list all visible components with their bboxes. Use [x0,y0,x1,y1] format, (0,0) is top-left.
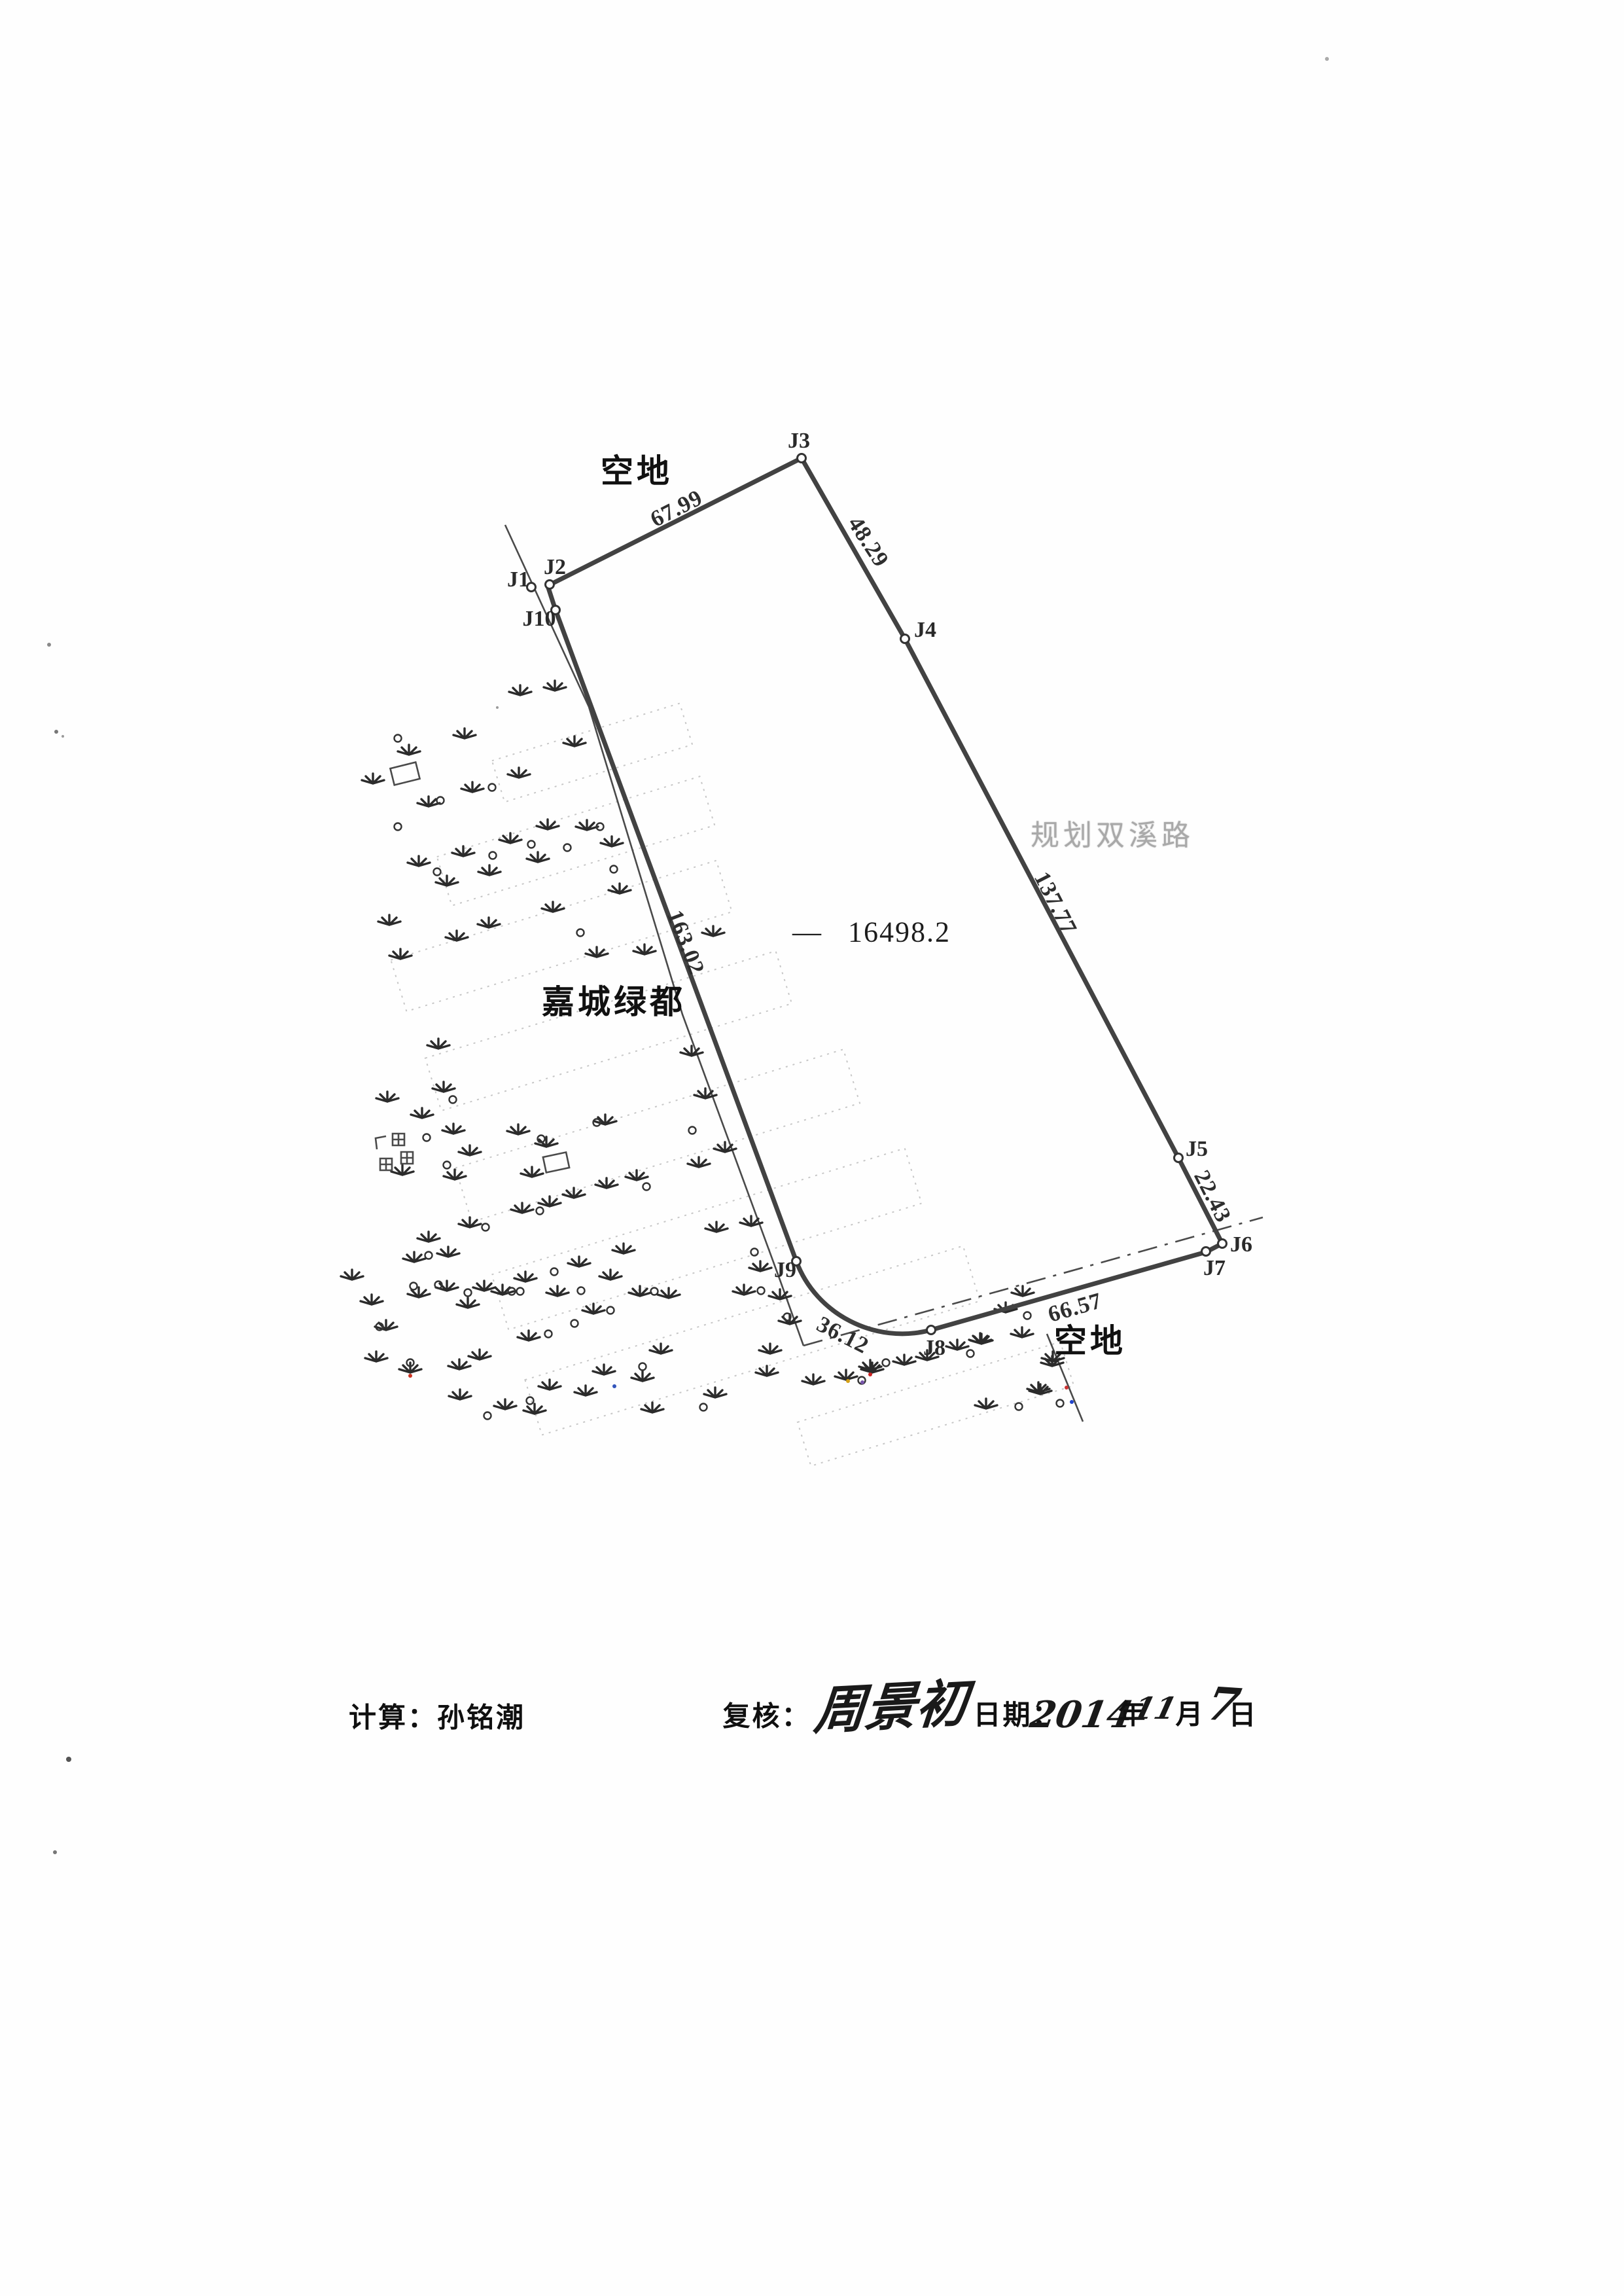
vertex-label-j9: J9 [774,1258,796,1283]
date-day-unit: 日 [1228,1693,1258,1733]
parcel-area-annotation: — 16498.2 [792,916,951,949]
vertex-marker-j4 [901,635,909,643]
date-month-unit: 月 [1175,1693,1205,1732]
vertex-marker-j2 [546,581,554,589]
area-leader-dash: — [792,916,822,948]
calculated-by-name: 孙铭潮 [437,1704,525,1734]
calculated-by-label: 计算： [349,1704,437,1734]
parcel-survey-drawing [0,0,1624,2296]
parcel-area-value: 16498.2 [848,916,951,948]
calculated-by-row: 计算：孙铭潮 [349,1696,525,1736]
vertex-label-j8: J8 [923,1336,945,1361]
vertex-marker-j8 [927,1326,936,1335]
vertex-label-j6: J6 [1230,1232,1252,1257]
vertex-label-j1: J1 [507,567,529,592]
vacant-land-label-top: 空地 [601,445,673,492]
neighborhood-label: 嘉城绿都 [542,976,686,1023]
planned-road-label: 规划双溪路 [1031,812,1194,853]
vertex-label-j10: J10 [523,607,556,632]
vertex-label-j7: J7 [1203,1256,1226,1281]
vertex-label-j3: J3 [788,429,810,454]
vertex-marker-j6 [1218,1240,1227,1248]
vertex-marker-j5 [1174,1154,1183,1162]
parcel-boundary [548,458,1222,1334]
vertex-label-j5: J5 [1186,1137,1208,1162]
vertex-marker-j3 [798,454,806,463]
survey-point-circles-background [376,735,1064,1420]
vertex-label-j2: J2 [544,555,566,580]
vertex-marker-j7 [1202,1247,1210,1256]
reviewed-by-label: 复核： [722,1695,811,1734]
date-month-handwritten: 11 [1129,1691,1180,1726]
scanned-survey-sheet: 空地 空地 嘉城绿都 规划双溪路 — 16498.2 J1J2J3J4J5J6J… [0,0,1624,2296]
vertex-label-j4: J4 [914,618,936,643]
reviewed-by-signature: 周景初 [811,1662,971,1744]
